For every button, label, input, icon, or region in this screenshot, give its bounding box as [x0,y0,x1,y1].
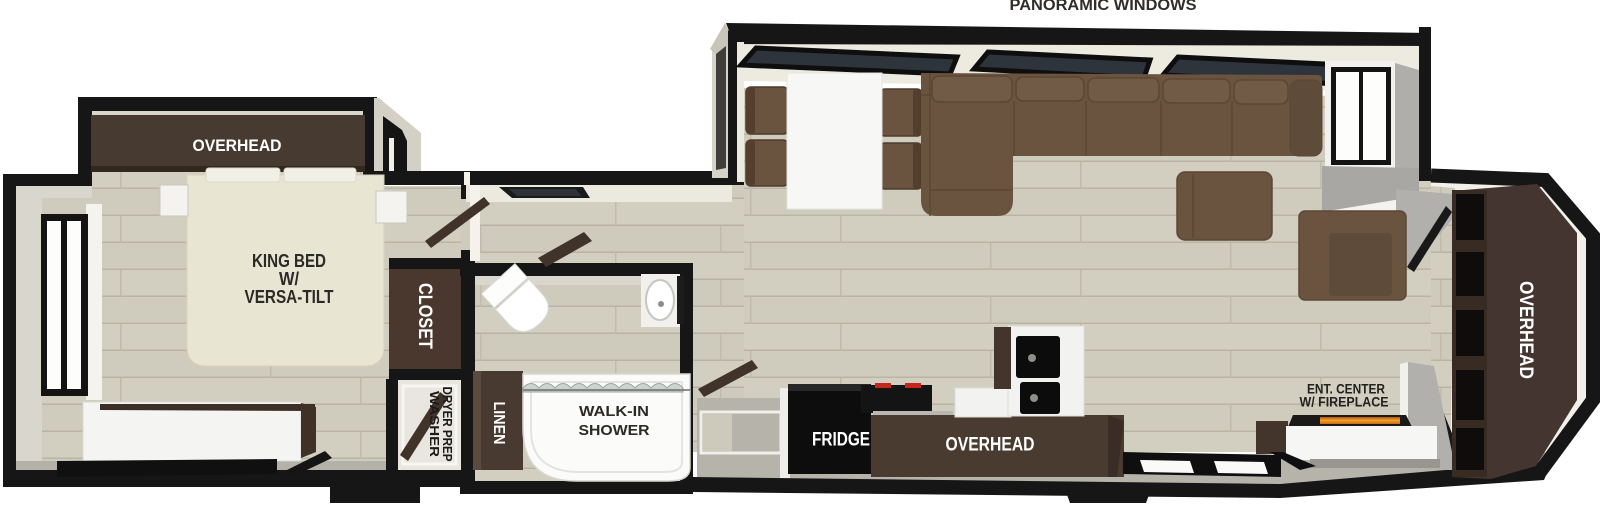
svg-text:OVERHEAD: OVERHEAD [1515,281,1537,379]
svg-text:OVERHEAD: OVERHEAD [193,137,282,155]
svg-text:DRYER PREP: DRYER PREP [440,387,454,462]
svg-text:PANORAMIC WINDOWS: PANORAMIC WINDOWS [1010,0,1197,14]
svg-text:CLOSET: CLOSET [414,283,435,349]
svg-text:KING BED: KING BED [252,251,326,271]
svg-text:VERSA-TILT: VERSA-TILT [245,287,334,307]
svg-text:OVERHEAD: OVERHEAD [946,435,1035,456]
svg-text:W/: W/ [279,269,299,289]
svg-text:SHOWER: SHOWER [579,422,650,439]
svg-text:WALK-IN: WALK-IN [579,403,649,420]
svg-text:FRIDGE: FRIDGE [812,430,870,451]
svg-text:W/ FIREPLACE: W/ FIREPLACE [1300,395,1389,410]
svg-text:WASHER: WASHER [427,391,441,457]
svg-text:LINEN: LINEN [490,402,507,445]
